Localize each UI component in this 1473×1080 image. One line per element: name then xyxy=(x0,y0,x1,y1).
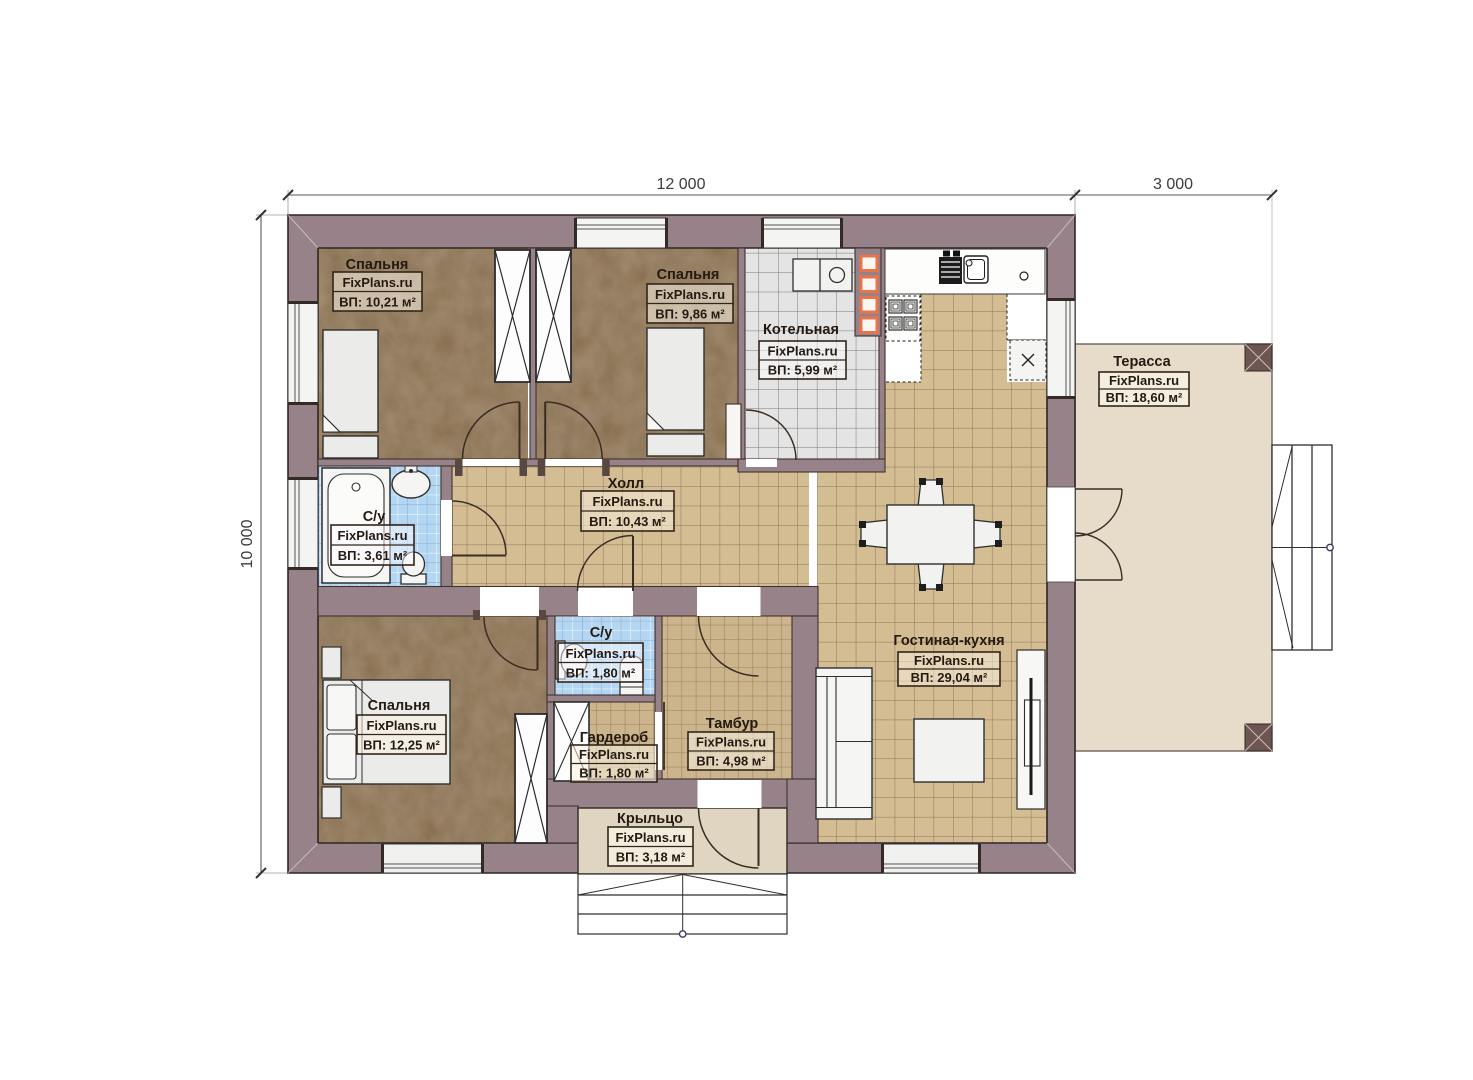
svg-text:ВП: 5,99 м²: ВП: 5,99 м² xyxy=(768,363,838,378)
svg-text:Гардероб: Гардероб xyxy=(580,730,649,746)
svg-text:FixPlans.ru: FixPlans.ru xyxy=(565,646,635,661)
svg-text:Терасса: Терасса xyxy=(1113,354,1171,370)
svg-text:ВП: 1,80 м²: ВП: 1,80 м² xyxy=(579,766,649,781)
svg-text:Котельная: Котельная xyxy=(763,322,839,338)
svg-text:12 000: 12 000 xyxy=(657,176,706,193)
svg-text:FixPlans.ru: FixPlans.ru xyxy=(696,735,766,750)
svg-text:FixPlans.ru: FixPlans.ru xyxy=(767,344,837,359)
svg-text:FixPlans.ru: FixPlans.ru xyxy=(1109,373,1179,388)
svg-text:С/у: С/у xyxy=(590,625,613,641)
svg-text:ВП: 3,18 м²: ВП: 3,18 м² xyxy=(616,850,686,865)
svg-text:FixPlans.ru: FixPlans.ru xyxy=(366,718,436,733)
svg-text:ВП: 10,21 м²: ВП: 10,21 м² xyxy=(339,295,416,310)
svg-text:FixPlans.ru: FixPlans.ru xyxy=(914,653,984,668)
svg-text:FixPlans.ru: FixPlans.ru xyxy=(615,830,685,845)
svg-text:3 000: 3 000 xyxy=(1153,176,1193,193)
svg-text:ВП: 29,04 м²: ВП: 29,04 м² xyxy=(911,670,988,685)
svg-text:ВП: 4,98 м²: ВП: 4,98 м² xyxy=(696,754,766,769)
svg-text:10 000: 10 000 xyxy=(239,519,256,568)
svg-text:ВП: 10,43 м²: ВП: 10,43 м² xyxy=(589,514,666,529)
svg-text:ВП: 1,80 м²: ВП: 1,80 м² xyxy=(566,666,636,681)
svg-text:FixPlans.ru: FixPlans.ru xyxy=(655,287,725,302)
svg-text:ВП: 3,61 м²: ВП: 3,61 м² xyxy=(338,548,408,563)
svg-text:Крыльцо: Крыльцо xyxy=(617,811,683,827)
svg-text:Холл: Холл xyxy=(608,476,644,492)
svg-text:FixPlans.ru: FixPlans.ru xyxy=(592,494,662,509)
svg-text:FixPlans.ru: FixPlans.ru xyxy=(342,275,412,290)
svg-text:Гостиная-кухня: Гостиная-кухня xyxy=(893,633,1004,649)
svg-text:Спальня: Спальня xyxy=(368,698,431,714)
svg-text:ВП: 12,25 м²: ВП: 12,25 м² xyxy=(363,738,440,753)
svg-text:ВП: 9,86 м²: ВП: 9,86 м² xyxy=(655,307,725,322)
svg-text:Спальня: Спальня xyxy=(346,257,409,273)
svg-text:ВП: 18,60 м²: ВП: 18,60 м² xyxy=(1106,390,1183,405)
svg-text:FixPlans.ru: FixPlans.ru xyxy=(337,528,407,543)
svg-text:FixPlans.ru: FixPlans.ru xyxy=(579,747,649,762)
svg-text:С/у: С/у xyxy=(363,509,386,525)
svg-text:Тамбур: Тамбур xyxy=(706,716,759,732)
svg-text:Спальня: Спальня xyxy=(657,267,720,283)
